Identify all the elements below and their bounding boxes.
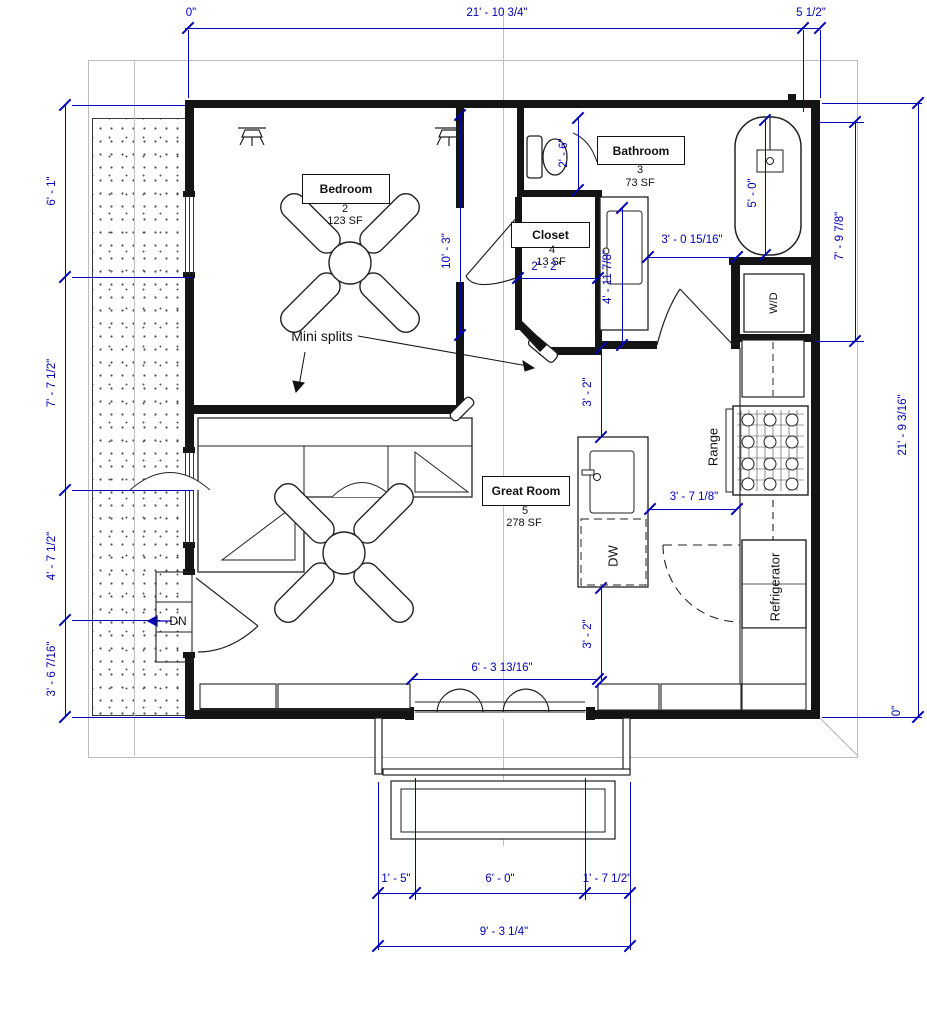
bathroom-label-box: Bathroom — [597, 136, 685, 165]
dn-label: DN — [169, 614, 186, 628]
great-room-name: Great Room — [492, 484, 561, 498]
dim-bottom-left: 1' - 5" — [381, 873, 410, 885]
dim-island-bottom: 3' - 2" — [582, 619, 594, 648]
sconce-icon — [238, 128, 266, 146]
dim-left-4: 3' - 6 7/16" — [46, 642, 58, 697]
toilet-room-door-swing — [573, 133, 597, 162]
dimension-line — [72, 277, 193, 278]
dimension-line — [601, 588, 602, 682]
dimension-line — [818, 122, 864, 123]
dim-bottom-center: 6' - 0" — [485, 873, 514, 885]
dim-top-offset: 5 1/2" — [796, 7, 826, 19]
mini-splits-arrows — [293, 336, 534, 392]
dimension-line — [622, 208, 623, 345]
dimension-line — [822, 103, 922, 104]
dim-island-range: 3' - 7 1/8" — [670, 491, 718, 503]
bathroom-area: 73 SF — [625, 177, 654, 189]
dimension-line — [601, 348, 602, 437]
great-room-label-box: Great Room — [482, 476, 570, 506]
dimension-line — [72, 490, 193, 491]
entry-doors — [415, 689, 585, 712]
dim-top-width: 21' - 10 3/4" — [466, 7, 527, 19]
dim-bath-clear: 3' - 0 15/16" — [661, 234, 722, 246]
dim-top-zero: 0" — [186, 7, 196, 19]
dimension-line — [72, 717, 185, 718]
dimension-line — [630, 782, 631, 950]
plan-linework — [0, 0, 927, 1014]
range-label: Range — [706, 428, 721, 466]
dimension-line — [412, 679, 598, 680]
dimension-line — [815, 341, 864, 342]
dim-bottom-total: 9' - 3 1/4" — [480, 926, 528, 938]
dimension-line — [855, 122, 856, 341]
dim-left-1: 6' - 1" — [46, 176, 58, 205]
ceiling-fan-bedroom — [276, 189, 424, 337]
dim-left-2: 7' - 7 1/2" — [46, 359, 58, 407]
closet-name: Closet — [532, 228, 569, 242]
bathroom-name: Bathroom — [613, 144, 670, 158]
dim-tub: 5' - 0" — [747, 178, 759, 207]
washer-dryer-label: W/D — [768, 292, 780, 313]
bedroom-number: 2 — [342, 203, 348, 215]
great-room-area: 278 SF — [506, 517, 541, 529]
dimension-line — [415, 778, 416, 900]
dim-right-zero: 0" — [891, 706, 903, 716]
dimension-line — [578, 118, 579, 190]
range-appliance — [726, 406, 808, 495]
cabinet-below-wd — [742, 340, 804, 397]
sconce-icon — [435, 128, 463, 146]
dimension-line — [188, 30, 189, 98]
great-room-number: 5 — [522, 505, 528, 517]
dimension-line — [378, 782, 379, 950]
dimension-line — [918, 103, 919, 717]
dimension-line — [820, 30, 821, 98]
dimension-line — [765, 120, 766, 255]
dim-entry: 6' - 3 13/16" — [471, 662, 532, 674]
dim-toilet: 2' - 6" — [558, 138, 570, 167]
floor-plan: Bedroom 2 123 SF Bathroom 3 73 SF Closet… — [0, 0, 927, 1014]
bedroom-area: 123 SF — [327, 215, 362, 227]
window-benches — [200, 684, 410, 710]
bathtub — [735, 117, 801, 255]
dim-closet: 2' - 2" — [531, 261, 560, 273]
dimension-line — [185, 28, 821, 29]
dimension-line — [518, 278, 598, 279]
dim-vanity: 4' - 11 7/8" — [602, 250, 614, 304]
dim-bottom-right: 1' - 7 1/2" — [583, 873, 631, 885]
dashed-door-swing — [663, 545, 740, 622]
dimension-line — [803, 30, 804, 112]
dishwasher-label: DW — [606, 545, 621, 567]
dimension-line — [72, 620, 160, 621]
dim-island-top: 3' - 2" — [582, 377, 594, 406]
dim-bedroom: 10' - 3" — [441, 233, 453, 269]
dim-right-total: 21' - 9 3/16" — [897, 394, 909, 455]
bathroom-number: 3 — [637, 164, 643, 176]
mini-splits-note: Mini splits — [291, 328, 352, 344]
dim-right-upper: 7' - 9 7/8" — [834, 212, 846, 260]
roof-diagonal — [820, 718, 858, 756]
dimension-line — [65, 105, 66, 717]
porch — [375, 718, 630, 839]
dimension-line — [72, 105, 185, 106]
dimension-line — [822, 717, 922, 718]
dimension-line — [460, 115, 461, 335]
dim-left-3: 4' - 7 1/2" — [46, 532, 58, 580]
bedroom-label-box: Bedroom — [302, 174, 390, 204]
closet-number: 4 — [549, 244, 555, 256]
refrigerator-label: Refrigerator — [768, 553, 783, 622]
dimension-line — [650, 509, 737, 510]
dimension-line — [378, 946, 630, 947]
dimension-line — [648, 257, 737, 258]
bedroom-name: Bedroom — [320, 182, 373, 196]
